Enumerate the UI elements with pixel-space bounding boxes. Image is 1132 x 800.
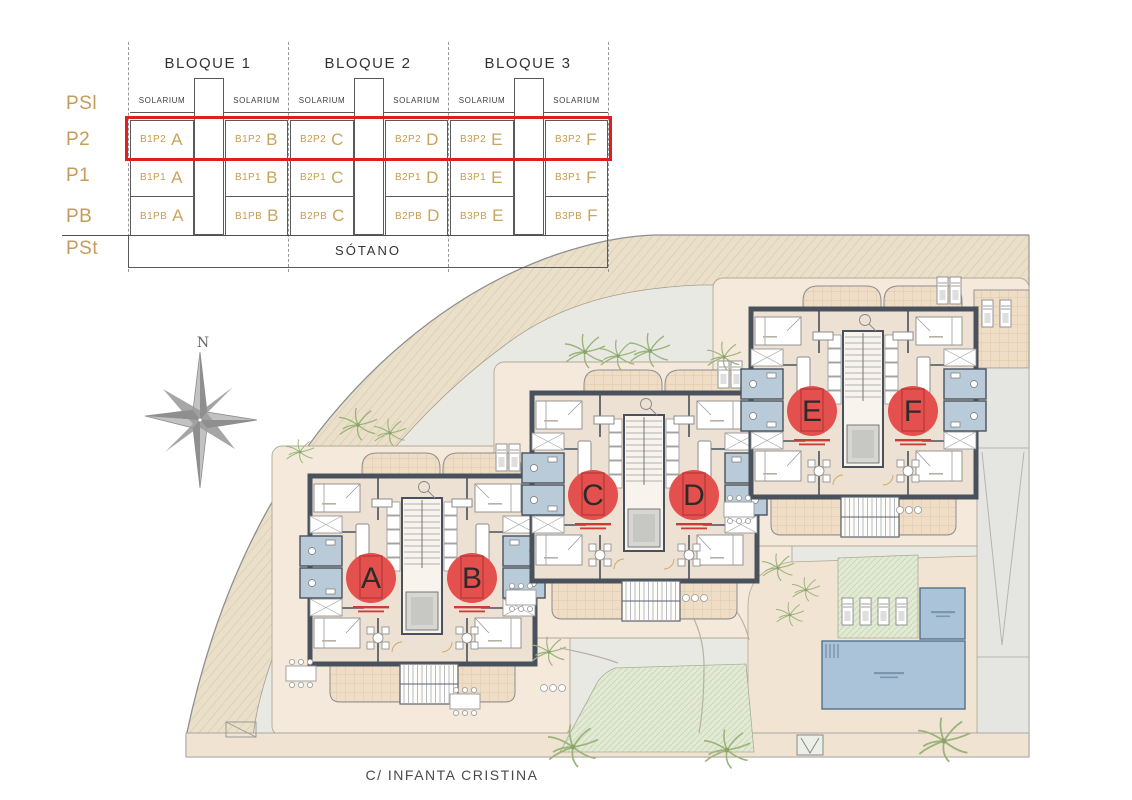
floor-label-pst[interactable]: PSt	[66, 238, 118, 260]
floor-label-psl[interactable]: PSl	[66, 93, 118, 115]
lawn-loungers	[838, 555, 918, 638]
svg-text:B: B	[462, 562, 482, 595]
site-plan-page: A B C D E F N C/ INFANTA CRISTINA PSl P2…	[0, 0, 1132, 800]
unit-cell-b1p1-a[interactable]: B1P1A	[130, 158, 194, 197]
floor-label-p2[interactable]: P2	[66, 129, 118, 151]
svg-text:D: D	[683, 479, 705, 512]
floor-label-p1[interactable]: P1	[66, 165, 118, 187]
svg-text:F: F	[904, 395, 922, 428]
floor-label-pb[interactable]: PB	[66, 206, 118, 228]
unit-cell-b3pb-f[interactable]: B3PBF	[545, 196, 608, 236]
svg-text:C: C	[582, 479, 604, 512]
unit-cell-b3pb-e[interactable]: B3PBE	[450, 196, 514, 236]
building-bloque-1	[300, 444, 545, 704]
solarium-cell: SOLARIUM	[225, 90, 288, 112]
solarium-cell: SOLARIUM	[290, 90, 354, 112]
compass-rose: N	[145, 335, 257, 488]
street-label: C/ INFANTA CRISTINA	[366, 767, 539, 783]
unit-cell-b3p1-f[interactable]: B3P1F	[545, 158, 608, 197]
unit-cell-b2pb-d[interactable]: B2PBD	[385, 196, 448, 236]
solarium-cell: SOLARIUM	[545, 90, 608, 112]
unit-cell-b3p1-e[interactable]: B3P1E	[450, 158, 514, 197]
solarium-cell: SOLARIUM	[130, 90, 194, 112]
block-header-1: BLOQUE 1	[128, 55, 288, 72]
selected-floor-highlight	[125, 116, 612, 161]
block-header-2: BLOQUE 2	[288, 55, 448, 72]
sotano-cell: SÓTANO	[128, 236, 608, 268]
swimming-pool	[822, 641, 965, 709]
block-header-3: BLOQUE 3	[448, 55, 608, 72]
compass-north-label: N	[197, 335, 209, 351]
unit-cell-b1pb-a[interactable]: B1PBA	[130, 196, 194, 236]
unit-cell-b2p1-d[interactable]: B2P1D	[385, 158, 448, 197]
svg-text:E: E	[802, 395, 822, 428]
unit-cell-b2pb-c[interactable]: B2PBC	[290, 196, 354, 236]
building-bloque-3	[741, 277, 986, 537]
unit-cell-b1pb-b[interactable]: B1PBB	[225, 196, 288, 236]
unit-cell-b1p1-b[interactable]: B1P1B	[225, 158, 288, 197]
solarium-cell: SOLARIUM	[450, 90, 514, 112]
building-bloque-2	[522, 361, 767, 621]
svg-text:A: A	[361, 562, 381, 595]
kids-pool	[920, 588, 965, 639]
unit-cell-b2p1-c[interactable]: B2P1C	[290, 158, 354, 197]
solarium-cell: SOLARIUM	[385, 90, 448, 112]
